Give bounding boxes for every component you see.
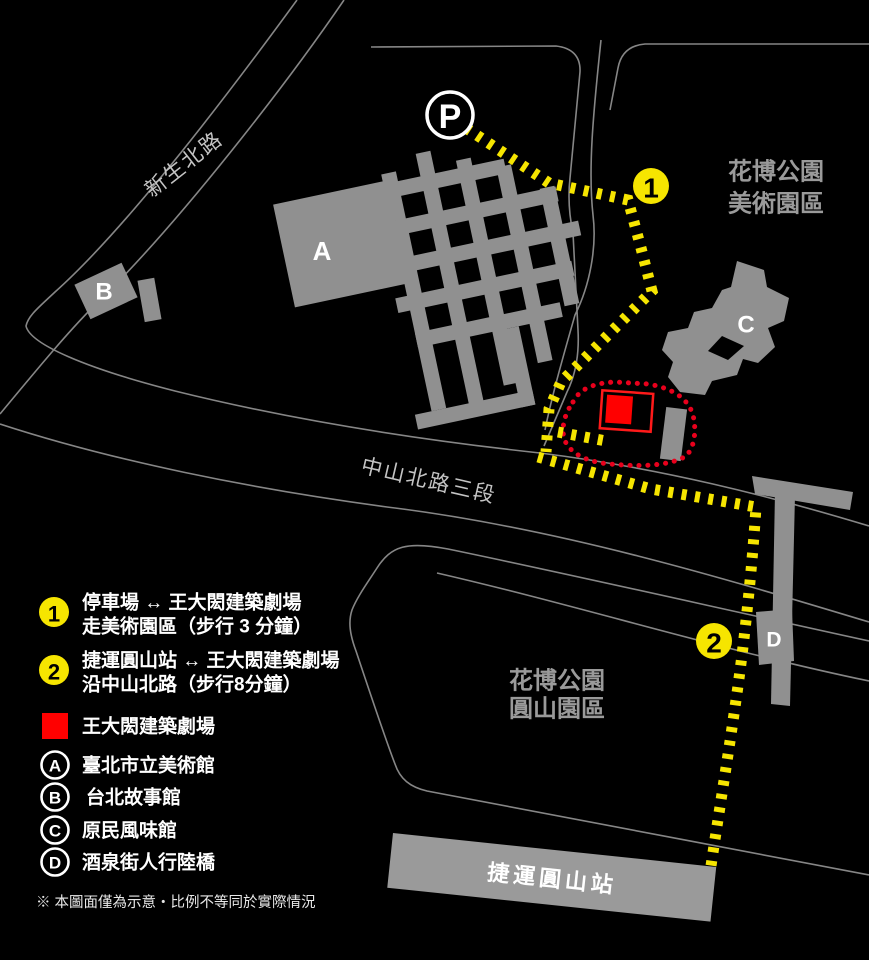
legend-venue-label: 王大閎建築劇場 xyxy=(82,715,215,738)
legend-d-letter: D xyxy=(49,854,61,873)
legend-route-2-line1: 捷運圓山站 ↔ 王大閎建築劇場 xyxy=(82,649,340,672)
legend-route-1-line1: 停車場 ↔ 王大閎建築劇場 xyxy=(82,591,302,614)
building-a-museum: A xyxy=(269,124,614,449)
legend-note: ※ 本圖面僅為示意‧比例不等同於實際情況 xyxy=(36,893,316,911)
building-c-indigenous-hall: C xyxy=(662,261,789,395)
legend-a-letter: A xyxy=(49,757,61,776)
road-zhongshan-label: 中山北路三段 xyxy=(359,454,499,507)
venue-side-building xyxy=(660,407,687,461)
legend-venue: 王大閎建築劇場 xyxy=(42,713,215,739)
wenue-access-map: A B C D 捷運圓山站 P xyxy=(0,0,869,960)
road-xinsheng-label: 新生北路 xyxy=(141,127,228,202)
building-b-label: B xyxy=(95,279,112,306)
map-marker-2-number: 2 xyxy=(706,628,722,659)
building-a-label: A xyxy=(313,236,332,266)
legend-route-2-number: 2 xyxy=(48,660,60,685)
legend-route-1: 1 停車場 ↔ 王大閎建築劇場 走美術園區（步行 3 分鐘） xyxy=(39,591,312,638)
legend-route-2-line2: 沿中山北路（步行8分鐘） xyxy=(82,673,302,696)
venue-target xyxy=(563,382,695,465)
legend-item-b: B 台北故事館 xyxy=(42,784,182,811)
legend-route-2: 2 捷運圓山站 ↔ 王大閎建築劇場 沿中山北路（步行8分鐘） xyxy=(39,649,340,696)
area-art-park-line2: 美術園區 xyxy=(728,190,824,218)
area-art-park-line1: 花博公園 xyxy=(728,159,824,186)
legend-c-label: 原民風味館 xyxy=(82,819,177,842)
mrt-station-bar: 捷運圓山站 xyxy=(387,833,716,922)
legend-b-letter: B xyxy=(49,789,61,808)
legend-route-1-line2: 走美術園區（步行 3 分鐘） xyxy=(82,615,312,638)
route-2-path xyxy=(538,457,756,866)
legend-item-a: A 臺北市立美術館 xyxy=(42,752,216,779)
venue-building xyxy=(600,390,654,431)
parking-marker: P xyxy=(427,92,473,138)
museum-waffle-shape xyxy=(269,124,614,449)
artpark-north-boundary xyxy=(610,44,869,110)
area-yuanshan-line1: 花博公園 xyxy=(509,668,605,695)
map-marker-1-number: 1 xyxy=(643,173,659,204)
area-yuanshan-line2: 圓山園區 xyxy=(509,696,605,723)
legend-item-c: C 原民風味館 xyxy=(42,817,178,844)
map-marker-2: 2 xyxy=(696,623,732,659)
legend-route-1-number: 1 xyxy=(48,602,60,627)
legend-item-d: D 酒泉街人行陸橋 xyxy=(42,849,217,876)
map-canvas: A B C D 捷運圓山站 P xyxy=(0,0,869,960)
parking-letter: P xyxy=(439,98,462,136)
legend-b-label: 台北故事館 xyxy=(86,786,181,809)
building-d-label: D xyxy=(766,629,781,652)
building-c-label: C xyxy=(737,312,754,339)
legend-a-label: 臺北市立美術館 xyxy=(82,754,215,777)
legend-d-label: 酒泉街人行陸橋 xyxy=(82,851,216,874)
legend-c-letter: C xyxy=(49,822,61,841)
venue-swatch xyxy=(42,713,68,739)
map-marker-1: 1 xyxy=(633,168,669,204)
legend: 1 停車場 ↔ 王大閎建築劇場 走美術園區（步行 3 分鐘） 2 捷運圓山站 ↔… xyxy=(36,591,340,912)
